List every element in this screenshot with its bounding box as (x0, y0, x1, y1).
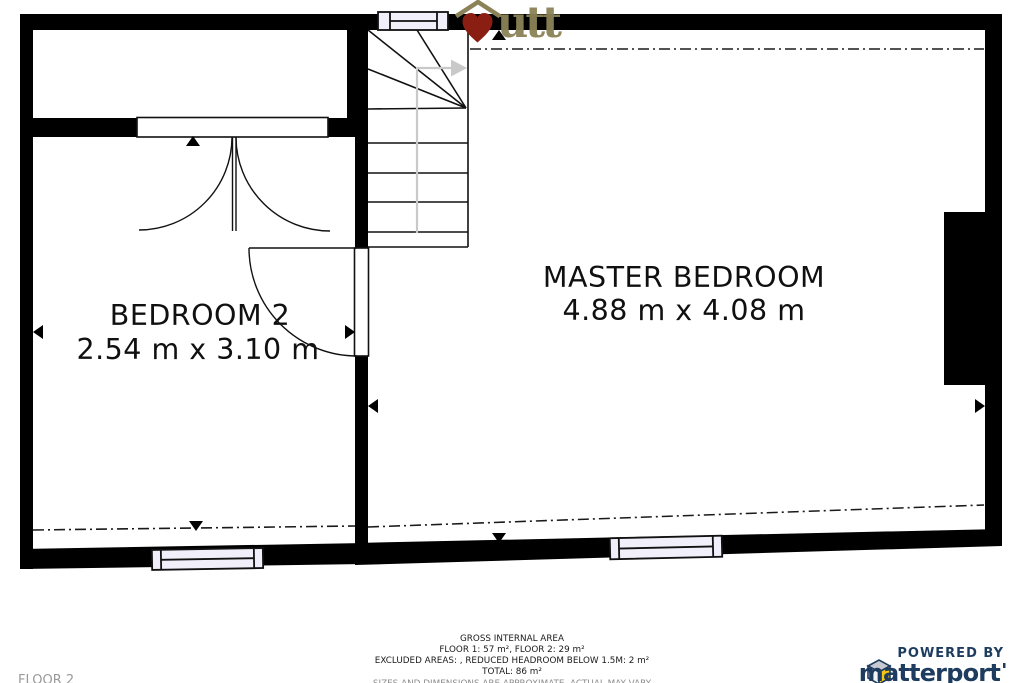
bedroom2-window (152, 548, 263, 570)
area-summary-total: TOTAL: 86 m² (481, 667, 542, 677)
closet-door-swing-left (139, 138, 232, 231)
closet-door-opening (137, 118, 328, 138)
bedroom2-arrow-left-icon (33, 325, 43, 339)
room-labels: MASTER BEDROOM 4.88 m x 4.08 m BEDROOM 2… (76, 261, 825, 366)
bedroom2-label: BEDROOM 2 (110, 299, 290, 332)
bedroom2-dimensions: 2.54 m x 3.10 m (76, 333, 319, 366)
bedroom2-arrow-down-icon (189, 521, 203, 531)
stair-walkline (417, 60, 467, 234)
stair-window (378, 12, 448, 30)
master-bedroom-label: MASTER BEDROOM (543, 261, 825, 294)
floorplan-canvas: MASTER BEDROOM 4.88 m x 4.08 m BEDROOM 2… (0, 0, 1024, 683)
bedroom2-door-opening (355, 248, 369, 356)
area-summary: GROSS INTERNAL AREA FLOOR 1: 57 m², FLOO… (373, 634, 652, 683)
closet-door-swing-right (236, 138, 330, 232)
area-summary-title: GROSS INTERNAL AREA (460, 634, 564, 644)
floorplan-page: MASTER BEDROOM 4.88 m x 4.08 m BEDROOM 2… (0, 0, 1024, 683)
chimney-breast (944, 212, 985, 385)
master-bedroom-dimensions: 4.88 m x 4.08 m (562, 294, 805, 327)
matterport-attribution: POWERED BY matterport (859, 646, 1006, 683)
wall-left (20, 14, 33, 569)
agency-logo-text: utt (497, 0, 562, 48)
area-summary-disclaimer: SIZES AND DIMENSIONS ARE APPROXIMATE, AC… (373, 679, 652, 683)
area-summary-excluded: EXCLUDED AREAS: , REDUCED HEADROOM BELOW… (375, 656, 649, 666)
wall-stair-left (347, 28, 368, 120)
matterport-wordmark: matterport (859, 659, 1001, 683)
roof-icon (458, 2, 498, 15)
agency-logo: utt (458, 0, 562, 48)
wall-closet-bottom-left (20, 118, 137, 137)
dimension-arrows (33, 30, 985, 543)
wall-right (985, 14, 1002, 544)
master-arrow-left-icon (368, 399, 378, 413)
headroom-line-bottom-master (368, 505, 984, 527)
walls (20, 14, 1002, 569)
master-window (610, 536, 722, 560)
bedroom2-arrow-right-icon (345, 325, 355, 339)
area-summary-floors: FLOOR 1: 57 m², FLOOR 2: 29 m² (439, 645, 584, 655)
trademark-mark (1003, 663, 1006, 668)
master-arrow-right-icon (975, 399, 985, 413)
stair-direction-arrow-icon (451, 60, 467, 77)
floor-label: FLOOR 2 (18, 673, 74, 683)
